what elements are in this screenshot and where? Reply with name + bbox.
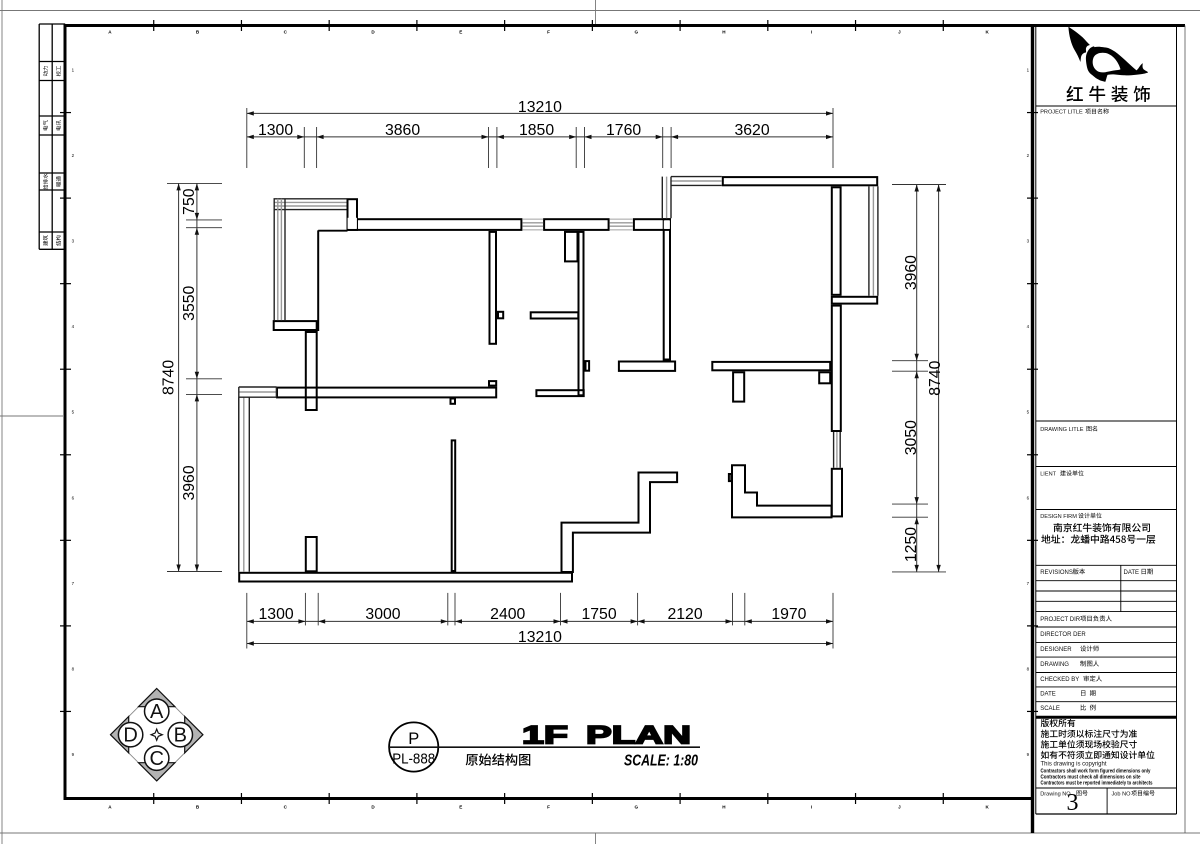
svg-text:Contractors must be reported i: Contractors must be reported immediately…: [1041, 780, 1153, 786]
svg-text:2400: 2400: [490, 606, 525, 623]
svg-text:J: J: [898, 30, 901, 35]
svg-text:1970: 1970: [771, 606, 806, 623]
svg-text:8740: 8740: [927, 360, 944, 395]
svg-text:SCALE: SCALE: [1040, 706, 1060, 712]
svg-text:SCALE: 1:80: SCALE: 1:80: [624, 752, 698, 769]
svg-text:D: D: [123, 725, 137, 747]
svg-text:DRAWING: DRAWING: [1040, 662, 1069, 668]
svg-text:Job NO: Job NO: [1112, 791, 1132, 797]
svg-text:F: F: [547, 30, 550, 35]
svg-text:REVISIONS: REVISIONS: [1040, 570, 1073, 576]
svg-text:3050: 3050: [903, 420, 920, 455]
svg-text:DIRECTOR DER: DIRECTOR DER: [1040, 632, 1086, 638]
svg-text:750: 750: [181, 188, 198, 215]
svg-text:3000: 3000: [365, 606, 400, 623]
svg-text:DATE: DATE: [1124, 570, 1140, 576]
svg-text:3960: 3960: [181, 465, 198, 500]
svg-text:A: A: [150, 701, 164, 723]
svg-text:13210: 13210: [518, 629, 562, 646]
svg-text:3860: 3860: [385, 122, 420, 139]
svg-text:PL-888: PL-888: [392, 751, 435, 768]
svg-text:F: F: [547, 805, 550, 810]
svg-text:13210: 13210: [518, 99, 562, 116]
svg-text:1F: 1F: [522, 722, 568, 750]
svg-text:DATE: DATE: [1040, 691, 1056, 697]
svg-text:PLAN: PLAN: [586, 722, 691, 750]
svg-text:1850: 1850: [519, 122, 554, 139]
svg-text:I: I: [811, 30, 812, 35]
svg-text:LIENT: LIENT: [1040, 471, 1056, 477]
svg-text:PROJECT DIR: PROJECT DIR: [1040, 617, 1081, 623]
svg-text:E: E: [459, 30, 462, 35]
svg-text:PROJECT LITLE: PROJECT LITLE: [1040, 110, 1083, 116]
svg-text:DRAWING LITLE: DRAWING LITLE: [1040, 427, 1084, 433]
svg-text:1300: 1300: [259, 606, 294, 623]
svg-text:1250: 1250: [903, 527, 920, 562]
svg-text:J: J: [898, 805, 901, 810]
svg-text:1750: 1750: [581, 606, 616, 623]
svg-text:G: G: [634, 805, 638, 810]
svg-text:B: B: [174, 725, 187, 747]
svg-text:1300: 1300: [258, 122, 293, 139]
svg-text:CHECKED BY: CHECKED BY: [1040, 677, 1079, 683]
svg-text:3550: 3550: [181, 285, 198, 320]
svg-text:C: C: [149, 748, 163, 770]
svg-text:3: 3: [1067, 790, 1079, 816]
svg-text:3620: 3620: [734, 122, 769, 139]
svg-text:G: G: [634, 30, 638, 35]
svg-text:Contractors shall work form fi: Contractors shall work form figured dime…: [1041, 768, 1152, 774]
svg-text:DESIGN FIRM: DESIGN FIRM: [1040, 514, 1077, 520]
svg-text:1760: 1760: [606, 122, 641, 139]
svg-text:3960: 3960: [903, 255, 920, 290]
svg-text:2120: 2120: [667, 606, 702, 623]
svg-text:This drawing is copyright: This drawing is copyright: [1041, 762, 1107, 768]
svg-text:E: E: [459, 805, 462, 810]
svg-text:P: P: [408, 730, 419, 748]
svg-text:8740: 8740: [161, 360, 178, 395]
svg-text:I: I: [811, 805, 812, 810]
svg-text:DESIGNER: DESIGNER: [1040, 647, 1072, 653]
